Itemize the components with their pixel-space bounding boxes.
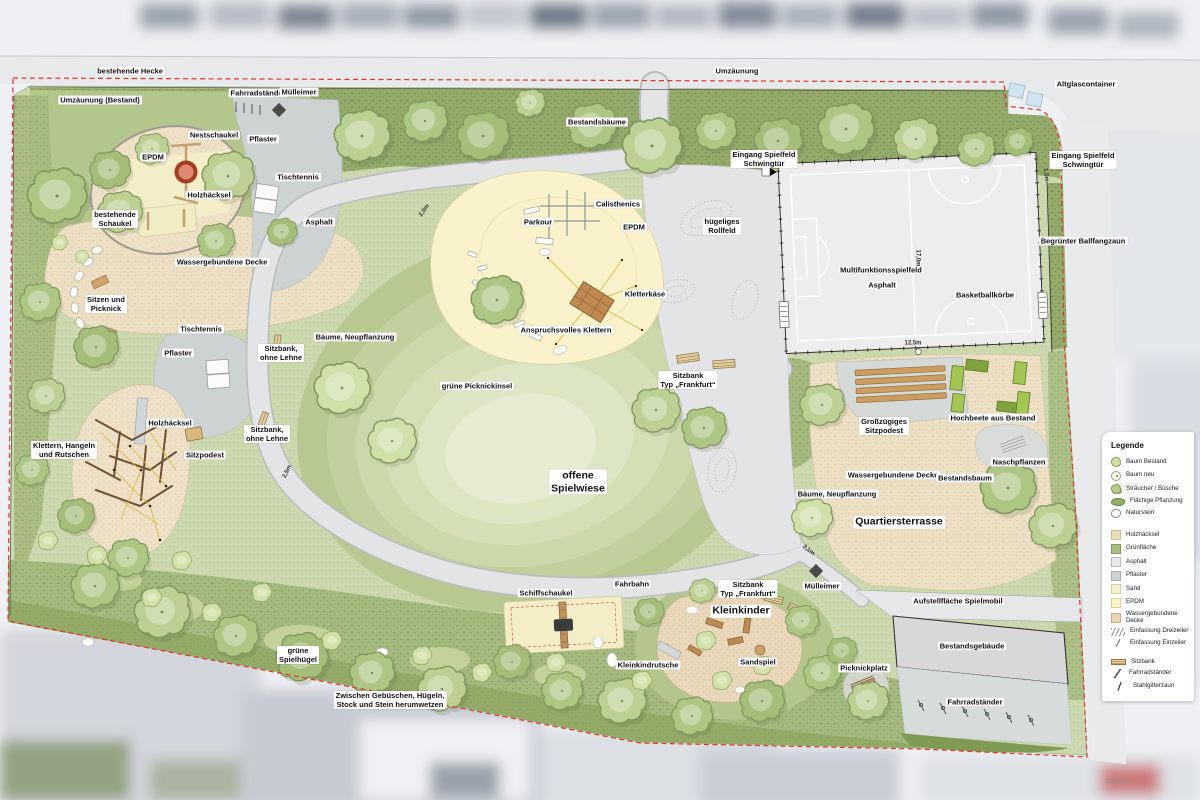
legend-item-label: Grünfläche: [1126, 545, 1156, 552]
plan-date: 28.06.21: [1106, 778, 1131, 785]
sw-asphalt-icon: [1111, 557, 1121, 567]
sw-baum-neu-icon: [1111, 471, 1121, 481]
sw-einf3-icon: [1111, 628, 1125, 636]
sw-holz-icon: [1111, 530, 1121, 540]
legend-item: Einfassung Dreizeiler: [1111, 628, 1189, 636]
sw-wgd-icon: [1111, 613, 1121, 623]
legend-item: Asphalt: [1111, 557, 1189, 567]
legend-item-label: Holzhäcksel: [1126, 532, 1159, 539]
legend-item-label: Wassergebundene Decke: [1126, 611, 1189, 624]
legend-item: Holzhäcksel: [1111, 530, 1189, 540]
legend-item-label: Sand: [1126, 586, 1140, 593]
sw-flaechige-icon: [1111, 498, 1125, 506]
sw-einf1-icon: [1111, 639, 1125, 647]
playground-site-plan: bestehende HeckeUmzäunungUmzäunung (Best…: [0, 0, 1200, 800]
legend-item: Einfassung Einzeiler: [1111, 639, 1189, 647]
sw-sitzbank-icon: [1111, 659, 1126, 665]
legend-panel: Legende Baum BestandBaum neuSträucher / …: [1102, 432, 1194, 701]
legend-item-label: Baum neu: [1126, 472, 1154, 479]
legend-item: Flächige Pflanzung: [1111, 498, 1189, 506]
legend-item: Wassergebundene Decke: [1111, 611, 1189, 624]
sw-sand-icon: [1111, 584, 1121, 594]
sw-zaun-icon: [1111, 682, 1128, 691]
sw-epdm-icon: [1111, 598, 1121, 608]
legend-item-label: Asphalt: [1126, 559, 1147, 566]
sw-gruen-icon: [1111, 544, 1121, 554]
legend-item: EPDM: [1111, 598, 1189, 608]
legend-item: Stahlgitterzaun: [1111, 682, 1189, 691]
sw-fahrrad-icon: [1111, 669, 1124, 678]
legend-item-label: Pflaster: [1126, 572, 1147, 579]
legend-title: Legende: [1111, 441, 1189, 450]
multifunction-field: [773, 144, 1050, 360]
ship-swing: [504, 596, 625, 654]
site-plan-drawing: [0, 0, 1200, 800]
legend-item: Baum neu: [1111, 471, 1189, 481]
sw-baum-bestand-icon: [1111, 457, 1121, 467]
legend-item: Sträucher / Büsche: [1111, 484, 1189, 494]
legend-item-label: Einfassung Dreizeiler: [1130, 628, 1188, 635]
sw-naturstein-icon: [1111, 509, 1121, 518]
legend-item: Fahrradständer: [1111, 669, 1189, 678]
legend-item-label: Einfassung Einzeiler: [1130, 640, 1186, 647]
legend-item-label: Sitzbank: [1131, 659, 1155, 666]
legend-item-label: Naturstein: [1126, 510, 1154, 517]
legend-item-label: Baum Bestand: [1126, 459, 1167, 466]
sw-straeucher-icon: [1111, 484, 1121, 494]
legend-item-label: Flächige Pflanzung: [1130, 498, 1183, 505]
seat-podium-icon: [185, 427, 203, 442]
legend-item-label: Sträucher / Büsche: [1126, 486, 1179, 493]
legend-item: Pflaster: [1111, 571, 1189, 581]
legend-items: Baum BestandBaum neuSträucher / BüscheFl…: [1111, 457, 1189, 691]
legend-item: Grünfläche: [1111, 544, 1189, 554]
sw-pflaster-icon: [1111, 571, 1121, 581]
legend-item-label: Stahlgitterzaun: [1133, 683, 1174, 690]
legend-item-label: Fahrradständer: [1129, 670, 1171, 677]
legend-item: Sitzbank: [1111, 659, 1189, 666]
nest-swing-icon: [177, 163, 196, 182]
legend-item: Baum Bestand: [1111, 457, 1189, 467]
legend-item: Sand: [1111, 584, 1189, 594]
legend-item-label: EPDM: [1126, 599, 1144, 606]
legend-item: Naturstein: [1111, 509, 1189, 518]
